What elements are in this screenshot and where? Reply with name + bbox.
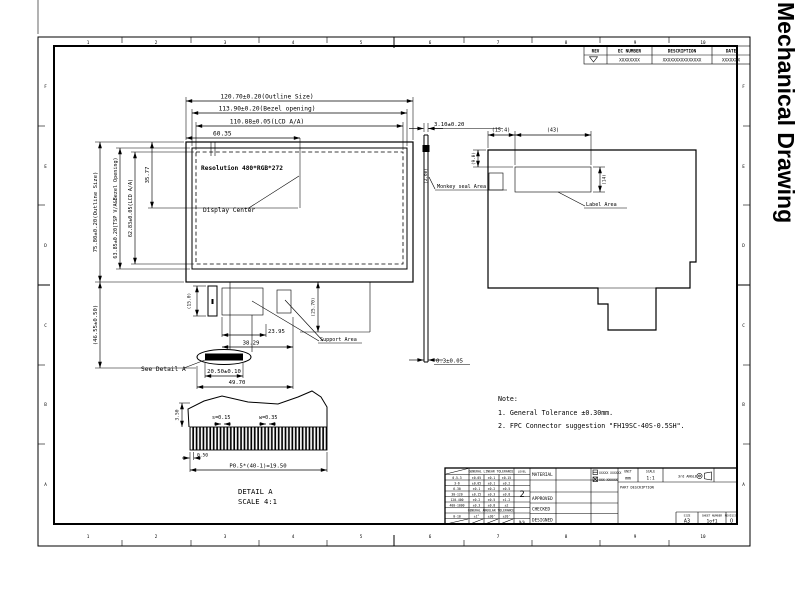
tolerance-rows: 0.5-3 ±0.05 ±0.1 ±0.15 3-6 ±0.05 ±0.1 ±0… — [450, 476, 512, 508]
ang-cell: ±20' — [503, 514, 511, 518]
dim-outline-width: 120.70±0.20(Outline Size) — [220, 94, 313, 101]
tol-cell: 0.5-3 — [452, 476, 461, 480]
zone-number: 1 — [87, 534, 90, 540]
tol-cell: ±0.1 — [488, 481, 496, 485]
tol-cell: 6-30 — [453, 487, 461, 491]
resolution-text: Resolution 480*RGB*272 — [201, 164, 283, 172]
dim-lcd-width: 110.88±0.05(LCD A/A) — [230, 119, 305, 126]
dim-center-x: 60.35 — [213, 131, 232, 138]
seal-area-region — [489, 173, 503, 190]
support-pad-1 — [222, 288, 263, 315]
detail-scale: SCALE 4:1 — [238, 497, 277, 506]
zone-letter: A — [742, 482, 745, 488]
tol-cell: ±0.05 — [472, 476, 481, 480]
back-view: (15.4) (43) (9.0) (14) Label Area — [471, 128, 696, 331]
tol-cell: 400-1000 — [450, 503, 465, 507]
dim-label-height: (14) — [602, 174, 608, 184]
checkbox-1-label: XXXXX XXXXXX — [599, 471, 621, 475]
zone-number: 5 — [360, 534, 363, 540]
tol-cell: ±0.15 — [502, 476, 511, 480]
dim-pitch: P0.5*(40-1)=19.50 — [229, 464, 286, 470]
tol-cell: ±0.1 — [488, 476, 496, 480]
page-title: Mechanical Drawing — [773, 2, 799, 223]
dim-label-top: (9.0) — [471, 152, 477, 165]
support-pad-2 — [277, 290, 291, 313]
tol-cell: ±0.3 — [473, 503, 481, 507]
zone-letter: D — [44, 243, 47, 249]
zone-number: 3 — [224, 40, 227, 46]
dim-bezel-height: 63.85±0.20(TSP V/A&Bezel Opening) — [113, 157, 119, 258]
revision-table: REV EC NUMBER DESCRIPTION DATE XXXXXXXX … — [584, 46, 750, 64]
approved-label: APPROVED — [532, 496, 553, 502]
seal-section — [423, 145, 430, 152]
tol-cell: ±0.8 — [488, 503, 496, 507]
zone-letter: C — [742, 323, 745, 329]
zone-number: 10 — [700, 534, 706, 540]
tol-cell: ±0.2 — [503, 481, 511, 485]
size-label: SIZE — [684, 514, 691, 518]
dim-pads-span: 38.29 — [243, 341, 260, 347]
scale-label: SCALE — [646, 470, 655, 474]
tol-cell: ±0.15 — [472, 492, 481, 496]
ang-cell: 0-10 — [453, 514, 461, 518]
sheet-number-label: SHEET NUMBER — [702, 514, 723, 518]
detail-a: 3.50 s=0.15 w=0.35 0.50 P0.5*(40-1)=19.5… — [175, 391, 328, 506]
zone-number: 4 — [292, 534, 295, 540]
ec-number-value: XXXXXXXX — [619, 58, 640, 64]
dim-thickness: 3.10±0.20 — [434, 122, 464, 128]
revision-triangle-icon — [590, 57, 598, 62]
zone-number: 1 — [87, 40, 90, 46]
dim-margin: 0.50 — [197, 453, 208, 459]
notes-heading: Note: — [498, 395, 518, 403]
part-description-label: PART DESCRIPTION — [620, 486, 654, 490]
zone-number: 8 — [565, 534, 568, 540]
note-line-1: 1. General Tolerance ±0.30mm. — [498, 409, 613, 417]
dim-lcd-height: 62.83±0.05(LCD A/A) — [128, 179, 134, 237]
date-header: DATE — [726, 49, 737, 55]
zone-number: 5 — [360, 40, 363, 46]
tol-cell: ±0.5 — [488, 498, 496, 502]
dim-width: w=0.35 — [259, 415, 277, 421]
linear-tol-header: GENERAL LINEAR TOLERANCE — [469, 470, 514, 474]
unit-value: mm — [625, 477, 631, 482]
zone-letter: C — [44, 323, 47, 329]
dim-seal-offset: (15.4) — [492, 128, 510, 134]
tolerance-grade: 2 — [519, 490, 524, 500]
description-header: DESCRIPTION — [668, 49, 697, 55]
tol-cell: 3-6 — [454, 481, 460, 485]
label-area-region — [515, 167, 591, 192]
support-area-label: Support Area — [320, 337, 357, 343]
zone-letter: F — [44, 84, 47, 90]
zone-number: 6 — [429, 534, 432, 540]
rev-header: REV — [592, 49, 600, 55]
date-value: XXXXXXX — [722, 58, 741, 64]
title-block: GENERAL LINEAR TOLERANCE LEVEL 0.5-3 ±0.… — [445, 468, 739, 525]
tol-cell: ±1.2 — [503, 498, 511, 502]
fpc-contact-band — [205, 354, 243, 361]
drawing-canvas: 1 2 3 4 5 6 7 8 9 10 1 2 3 4 5 6 7 8 9 1… — [0, 0, 800, 603]
dim-bezel-width: 113.90±0.20(Bezel opening) — [219, 106, 316, 113]
dim-outline-height: 75.80±0.20(Outline Size) — [93, 172, 99, 253]
unit-label: UNIT — [624, 470, 632, 474]
fpc-fingers — [190, 427, 327, 450]
zone-number: 2 — [155, 40, 158, 46]
zone-letter: E — [44, 164, 47, 170]
tol-cell: ±0.3 — [488, 492, 496, 496]
notes: Note: 1. General Tolerance ±0.30mm. 2. F… — [498, 395, 685, 430]
ang-cell: ±30' — [488, 514, 496, 518]
sheet-number-value: 1of1 — [706, 519, 717, 525]
ang-cell: ±1° — [474, 514, 480, 518]
tol-cell: 30-120 — [451, 492, 462, 496]
dim-space: s=0.15 — [212, 415, 230, 421]
zone-letter: B — [742, 402, 745, 408]
dim-pad-offset: 23.95 — [268, 329, 285, 335]
detail-title: DETAIL A — [238, 487, 273, 496]
tol-cell: ±0.8 — [503, 492, 511, 496]
angular-tol-header: GENERAL ANGULAR TOLERANCE — [468, 509, 515, 513]
designed-label: DESIGNED — [532, 518, 553, 524]
tol-cell: ±0.05 — [472, 481, 481, 485]
zone-numbers-top: 1 2 3 4 5 6 7 8 9 10 — [87, 40, 706, 46]
zone-number: 9 — [634, 534, 637, 540]
zone-letter: B — [44, 402, 47, 408]
zone-number: 2 — [155, 534, 158, 540]
zone-number: 4 — [292, 40, 295, 46]
dim-fpc-drop: (25.70) — [311, 297, 317, 316]
dim-contact-width: 20.50±0.10 — [207, 369, 241, 375]
zone-letter: D — [742, 243, 745, 249]
tol-cell: ±0.1 — [473, 487, 481, 491]
dim-step: 0.3±0.05 — [436, 359, 463, 365]
third-angle-symbol-icon — [697, 472, 712, 480]
checkbox-2-label: XXX XXXXXX — [599, 478, 618, 482]
tol-cell: ±2 — [505, 503, 509, 507]
zone-letter: F — [742, 84, 745, 90]
zone-numbers-bottom: 1 2 3 4 5 6 7 8 9 10 — [87, 534, 706, 540]
label-area-label: Label Area — [586, 202, 617, 208]
tol-cell: ±0.2 — [488, 487, 496, 491]
zone-letter: E — [742, 164, 745, 170]
seal-area-label: Monkey seal Area — [437, 184, 486, 190]
checked-label: CHECKED — [532, 507, 551, 513]
zone-number: 9 — [634, 40, 637, 46]
dim-center-y: 35.77 — [145, 167, 151, 184]
na-cell: N/A — [519, 520, 525, 524]
dim-glass: (2.60) — [423, 168, 429, 184]
description-value: XXXXXXXXXXXXXXX — [663, 58, 702, 64]
zone-letter: A — [44, 482, 47, 488]
zone-number: 7 — [497, 40, 500, 46]
note-line-2: 2. FPC Connector suggestion "FH19SC-40S-… — [498, 422, 685, 430]
dim-tape: (15.0) — [187, 293, 193, 310]
display-center-label: Display Center — [203, 207, 255, 214]
revision-label: REVISION — [725, 514, 739, 518]
zone-number: 8 — [565, 40, 568, 46]
size-value: A3 — [684, 519, 690, 525]
dim-finger-length: 3.50 — [175, 409, 181, 420]
tol-cell: ±0.5 — [503, 487, 511, 491]
tol-cell: 120-400 — [450, 498, 463, 502]
ec-number-header: EC NUMBER — [618, 49, 642, 55]
dim-bottom-height: (46.55±0.50) — [93, 305, 99, 345]
zone-number: 3 — [224, 534, 227, 540]
side-view: (2.60) 3.10±0.20 Monkey seal Area 0.3±0.… — [409, 122, 507, 365]
sheet-frame: 1 2 3 4 5 6 7 8 9 10 1 2 3 4 5 6 7 8 9 1… — [38, 0, 750, 546]
mechanical-drawing-sheet: 1 2 3 4 5 6 7 8 9 10 1 2 3 4 5 6 7 8 9 1… — [0, 0, 800, 603]
zone-number: 10 — [700, 40, 706, 46]
dim-fpc-width: 49.70 — [229, 380, 246, 386]
zone-ticks — [38, 37, 750, 546]
front-view: Resolution 480*RGB*272 120.70±0.20(Outli… — [93, 94, 413, 390]
see-detail-label: See Detail A — [141, 366, 186, 373]
angle-label: 3rd ANGLE — [678, 475, 697, 479]
fpc-tail: (15.0) (25.70) 23.95 38.29 Support Area — [141, 282, 370, 389]
zone-number: 7 — [497, 534, 500, 540]
tol-cell: ±0.2 — [473, 498, 481, 502]
zone-number: 6 — [429, 40, 432, 46]
material-label: MATERIAL — [532, 472, 553, 478]
dim-label-width: (43) — [547, 128, 559, 134]
level-label: LEVEL — [518, 470, 527, 474]
scale-value: 1:1 — [646, 476, 655, 482]
revision-value: O — [730, 519, 733, 525]
